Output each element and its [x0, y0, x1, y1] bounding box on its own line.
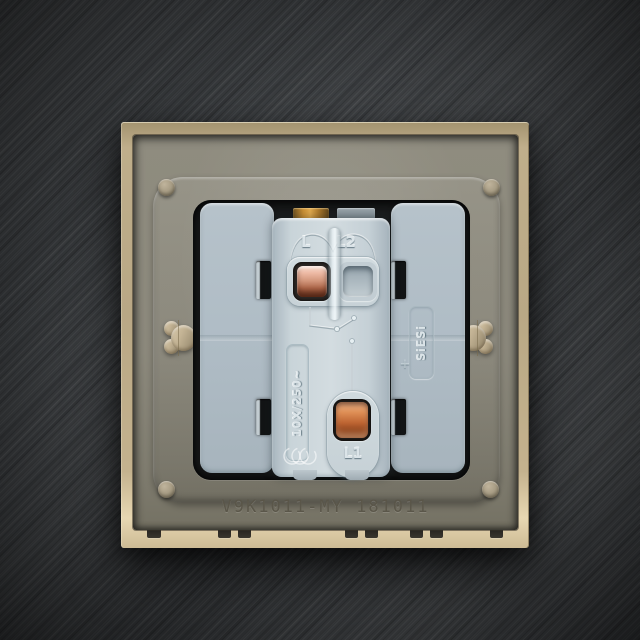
- terminal-l2-opening: [339, 262, 377, 301]
- fixing-slot: [256, 399, 271, 435]
- corner-rivet-bottom-left: [158, 481, 175, 498]
- brand-label: SiESi: [415, 325, 428, 361]
- terminal-l2-recess: [343, 266, 373, 297]
- terminal-l-opening: [293, 262, 331, 301]
- corner-rivet-bottom-right: [482, 481, 499, 498]
- module-opening: L L2: [193, 200, 470, 480]
- rating-label: 10X/250~: [291, 369, 304, 437]
- terminal-boss-bottom: L1: [327, 391, 379, 478]
- terminal-l1-opening: [333, 399, 371, 441]
- mounting-plate: L L2: [133, 135, 518, 530]
- ccc-certification-icon: [283, 443, 317, 469]
- fixing-slot: [256, 261, 271, 299]
- copper-screw-l: [297, 266, 327, 297]
- fixing-slot: [391, 399, 406, 435]
- product-photo: L L2: [0, 0, 640, 640]
- module-bottom-tab: [345, 470, 369, 480]
- module-bottom-tab: [293, 470, 317, 480]
- terminal-label-l1: L1: [327, 446, 379, 462]
- module-center-column: L L2: [272, 218, 390, 477]
- terminal-label-l: L: [301, 233, 311, 251]
- fixing-slot: [391, 261, 406, 299]
- corner-rivet-top-left: [158, 179, 175, 196]
- copper-screw-l1: [336, 402, 368, 438]
- cross-mark: +: [397, 357, 413, 373]
- gold-face-plate: L L2: [121, 122, 529, 548]
- model-serial-text: V9K1011-MY 181011: [133, 497, 518, 517]
- mounting-keyhole-left: [162, 320, 196, 356]
- corner-rivet-top-right: [483, 179, 500, 196]
- wing-seam: [200, 335, 274, 341]
